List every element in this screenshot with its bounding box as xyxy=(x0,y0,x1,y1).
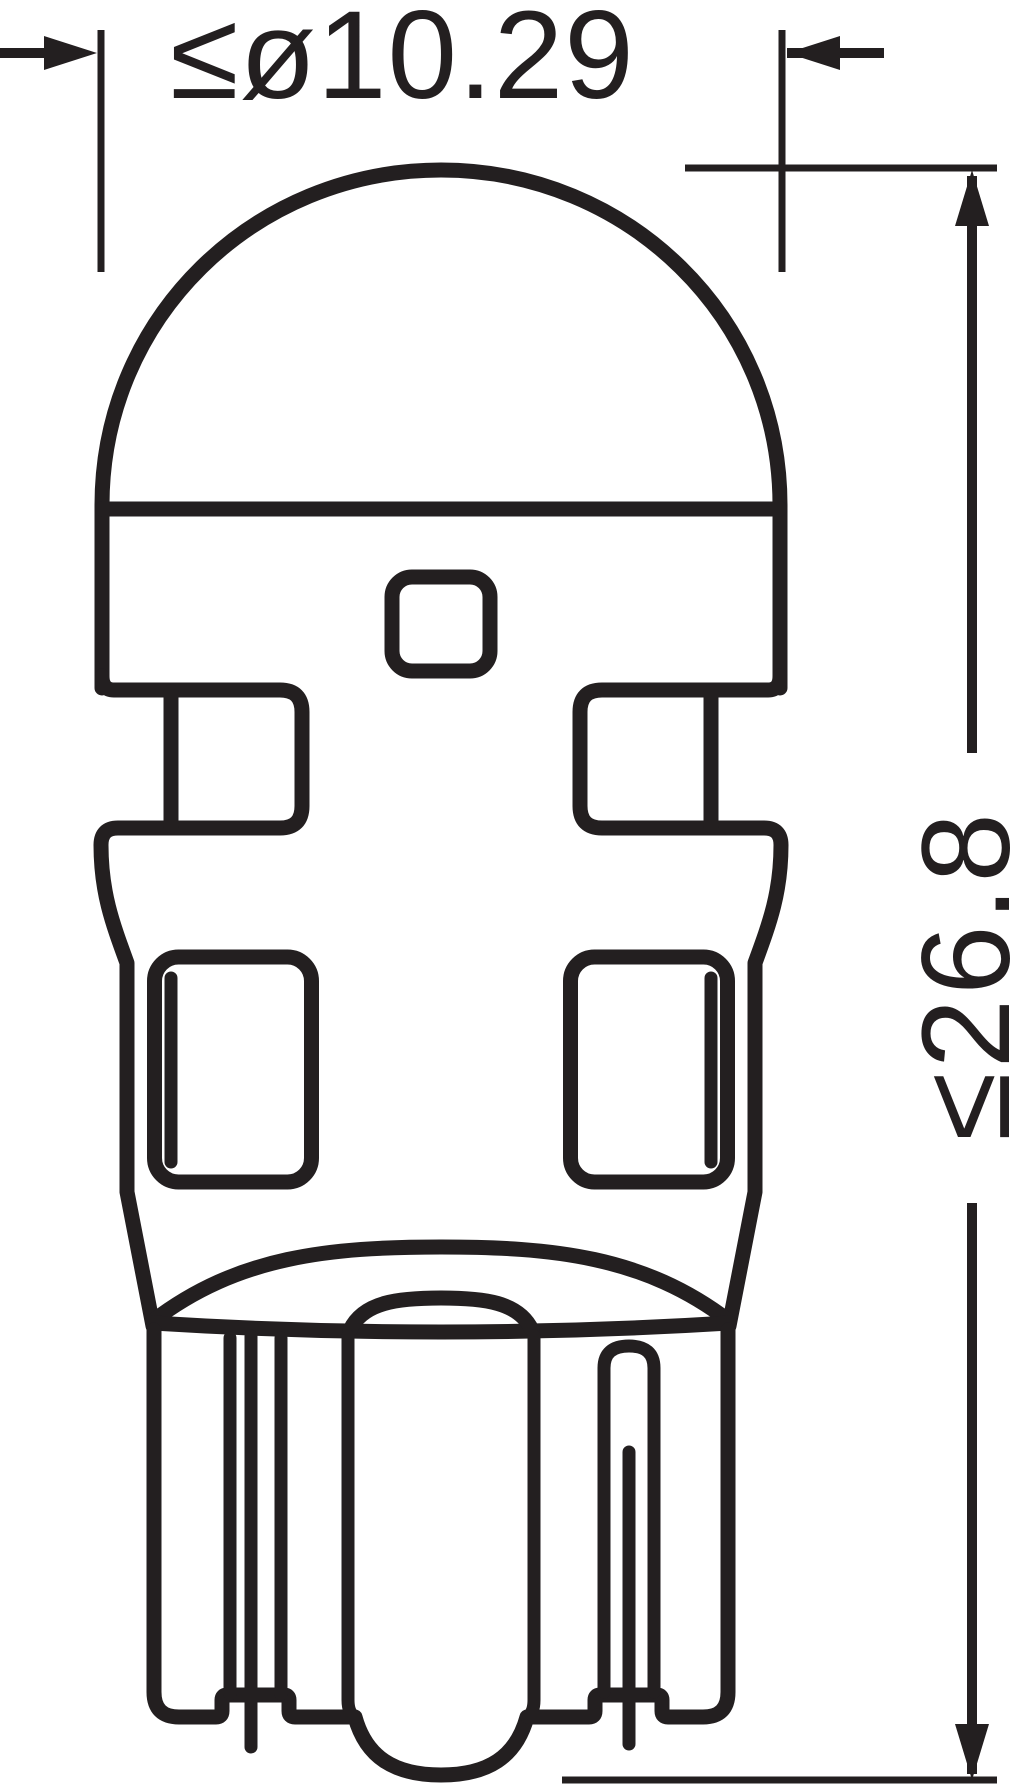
glass-column-right-wall xyxy=(527,1336,534,1717)
base-seam-arch xyxy=(153,1247,729,1321)
arrowhead-right-pointing xyxy=(44,36,97,70)
technical-drawing-canvas: ≤ø10.29 ≤26.8 xyxy=(0,0,1024,1784)
body-step-left xyxy=(101,676,302,1326)
arrowhead-down-pointing xyxy=(955,1724,989,1780)
led-window-right xyxy=(571,957,728,1182)
bulb-line-drawing xyxy=(0,0,1024,1784)
wedge-base xyxy=(153,1247,729,1775)
bulb-dome xyxy=(102,170,780,688)
arrowhead-left-pointing xyxy=(787,36,840,70)
body-step-right xyxy=(580,676,781,1326)
center-window xyxy=(392,577,490,671)
glass-column-left-wall xyxy=(348,1336,355,1717)
height-dimension-label: ≤26.8 xyxy=(901,765,1024,1185)
arrowhead-up-pointing xyxy=(955,170,989,226)
led-window-left xyxy=(155,957,312,1182)
base-top-line xyxy=(153,1323,729,1332)
diameter-dimension-label: ≤ø10.29 xyxy=(170,0,635,127)
base-outline xyxy=(154,1330,728,1775)
